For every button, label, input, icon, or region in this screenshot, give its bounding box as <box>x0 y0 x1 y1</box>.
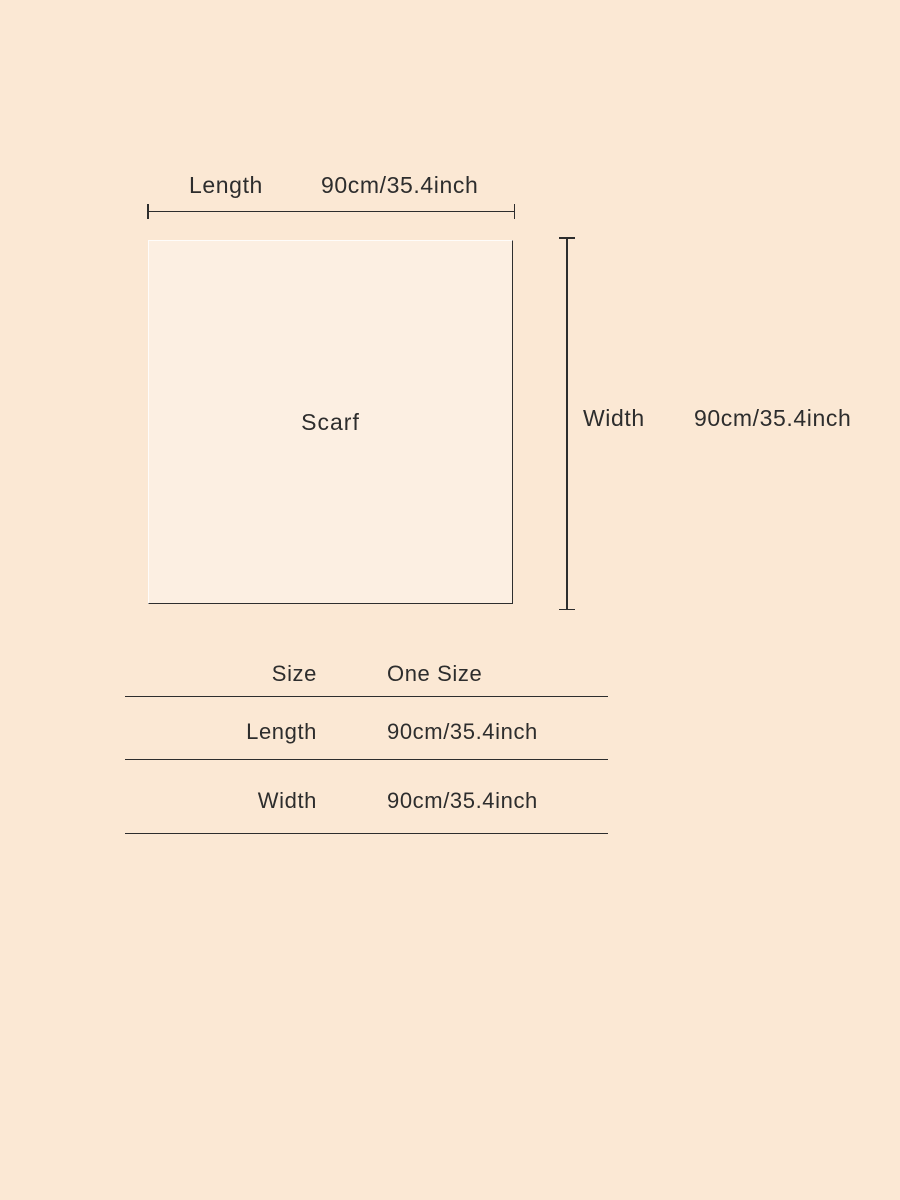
size-chart-page: Length 90cm/35.4inch Scarf Width 90cm/35… <box>0 0 900 1200</box>
table-row: Width 90cm/35.4inch <box>125 760 608 834</box>
width-dimension-value: 90cm/35.4inch <box>694 405 851 431</box>
table-row: Length 90cm/35.4inch <box>125 697 608 760</box>
table-row-value: 90cm/35.4inch <box>387 719 608 745</box>
size-table-header-size: Size <box>125 661 317 687</box>
dimension-line <box>147 211 515 213</box>
dimension-cap-bottom <box>559 609 575 611</box>
length-dimension-line <box>147 204 515 219</box>
table-row-label: Width <box>125 788 317 814</box>
size-table-header-one-size: One Size <box>387 661 608 687</box>
table-row-value: 90cm/35.4inch <box>387 788 608 814</box>
length-dimension-value: 90cm/35.4inch <box>321 172 478 198</box>
size-table: Size One Size Length 90cm/35.4inch Width… <box>125 655 608 834</box>
width-dimension-label: Width <box>583 405 645 431</box>
length-dimension-label: Length <box>189 172 263 198</box>
scarf-diagram-square: Scarf <box>148 240 513 604</box>
dimension-line <box>566 237 568 610</box>
width-dimension-line <box>559 237 575 610</box>
size-table-header-row: Size One Size <box>125 655 608 697</box>
scarf-label: Scarf <box>301 409 360 436</box>
dimension-tick-right <box>514 204 516 219</box>
table-row-label: Length <box>125 719 317 745</box>
